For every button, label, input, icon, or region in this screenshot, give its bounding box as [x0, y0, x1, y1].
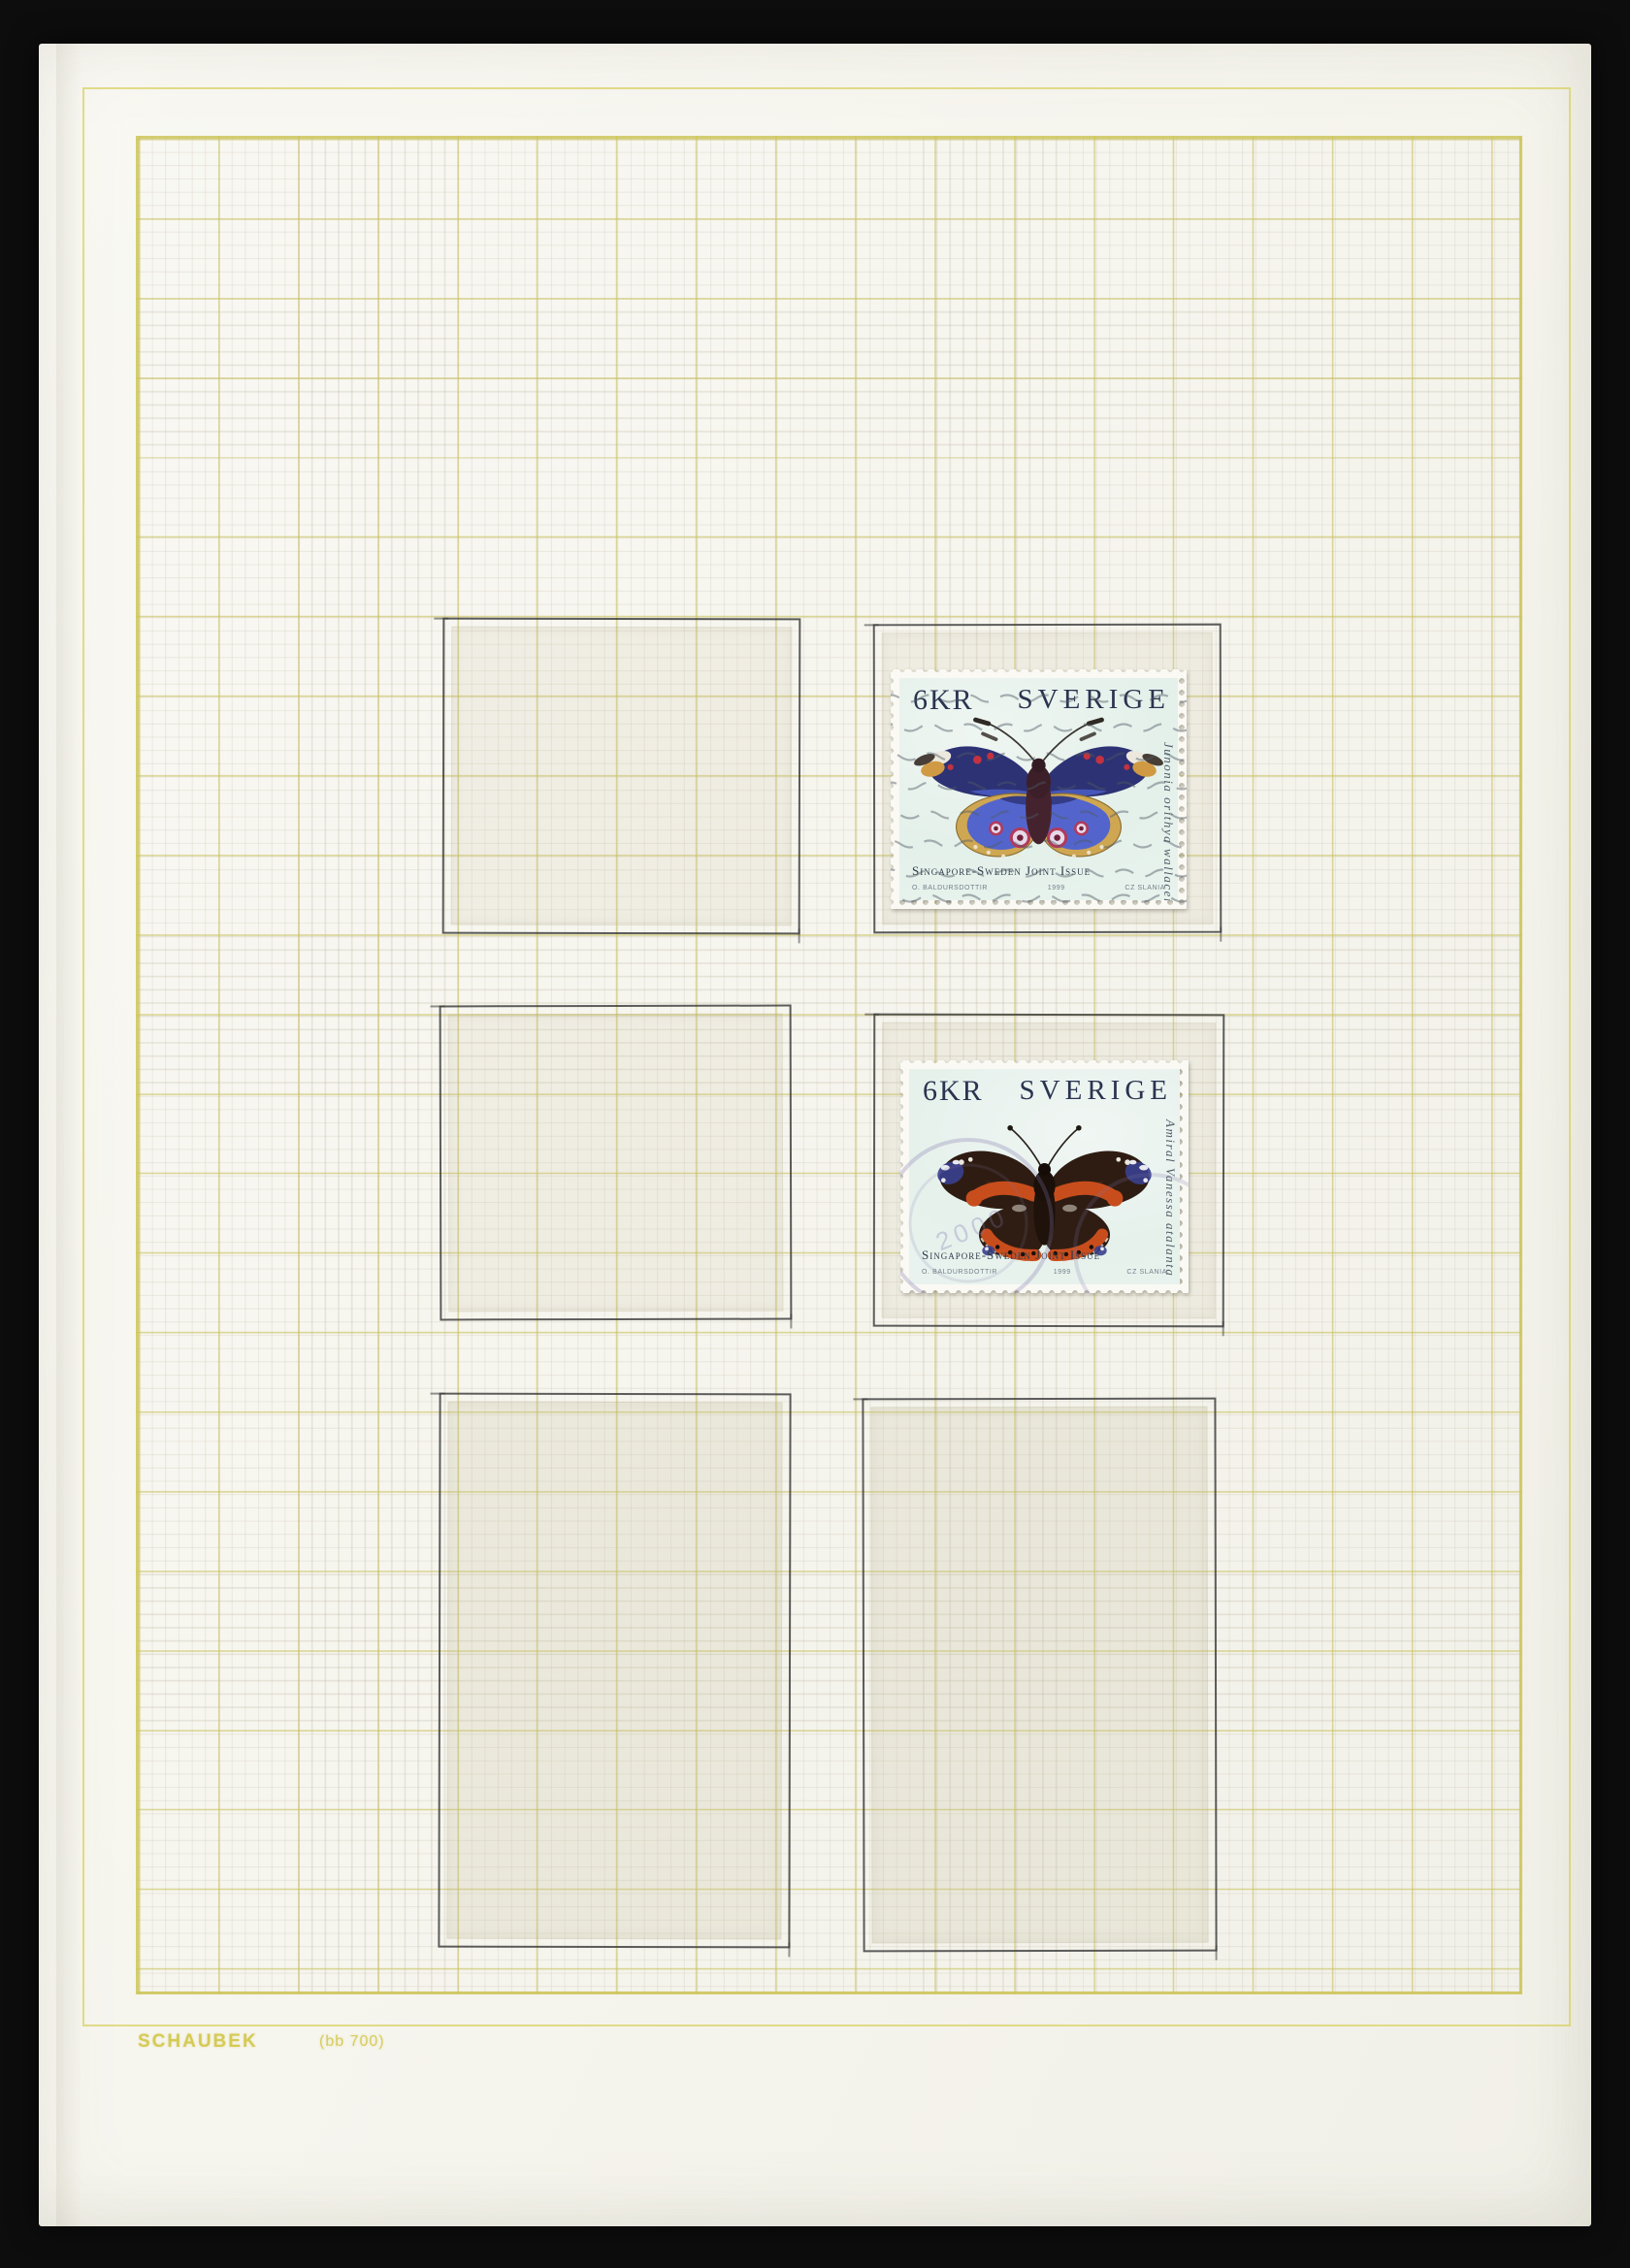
stamp-slot-empty-2	[440, 1005, 793, 1321]
stamp-engraver: Cz Slania	[1126, 1269, 1167, 1276]
photo-background: 6KR SVERIGE	[0, 0, 1630, 2268]
stamp-country: SVERIGE	[1020, 1075, 1172, 1107]
stamp-red-admiral: 6KR SVERIGE	[900, 1060, 1189, 1293]
stamp-issue-caption: Singapore-Sweden Joint Issue	[922, 1247, 1100, 1263]
stamp-species-name: Amiral Vanessa atalanta	[1162, 1119, 1178, 1277]
stamp-country: SVERIGE	[1018, 684, 1170, 716]
brand-label: SCHAUBEK	[138, 2031, 258, 2053]
stamp-year: 1999	[1054, 1269, 1071, 1276]
stamp-artwork: 6KR SVERIGE	[909, 1069, 1180, 1284]
stamp-slot-empty-3	[438, 1393, 791, 1949]
stamp-species-name: Junonia orithya wallacei	[1160, 742, 1176, 900]
stamp-engraver: Cz Slania	[1125, 885, 1165, 891]
glassine-mount	[870, 1407, 1208, 1944]
stamp-designer: O. Baldursdottir	[922, 1269, 997, 1276]
stamp-slot-empty-4	[862, 1398, 1217, 1953]
stamp-slot-empty-1	[442, 618, 801, 935]
stamp-issue-caption: Singapore-Sweden Joint Issue	[912, 863, 1091, 879]
graph-grid	[136, 136, 1522, 1994]
stamp-blue-pansy: 6KR SVERIGE	[891, 669, 1187, 909]
stamp-year: 1999	[1048, 885, 1065, 891]
album-page: 6KR SVERIGE	[39, 44, 1591, 2226]
stamp-denomination: 6KR	[913, 684, 974, 717]
stamp-designer: O. Baldursdottir	[912, 885, 988, 891]
glassine-mount	[451, 627, 793, 926]
stamp-denomination: 6KR	[923, 1075, 984, 1108]
stamp-artwork: 6KR SVERIGE	[899, 678, 1178, 900]
glassine-mount	[446, 1402, 782, 1940]
reference-label: (bb 700)	[319, 2033, 385, 2051]
blue-pansy-butterfly-illustration	[899, 694, 1178, 878]
glassine-mount	[448, 1014, 784, 1312]
